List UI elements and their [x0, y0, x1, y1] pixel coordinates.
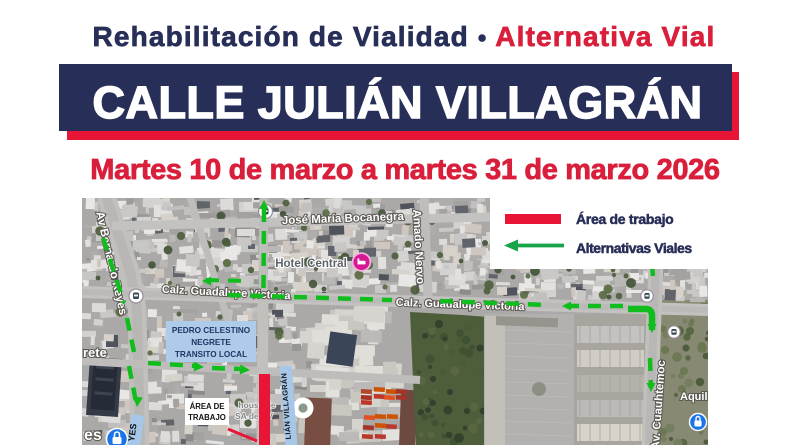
svg-text:TRABAJO: TRABAJO — [188, 413, 226, 422]
svg-text:PEDRO CELESTINO: PEDRO CELESTINO — [172, 326, 251, 335]
svg-text:TRANSITO LOCAL: TRANSITO LOCAL — [175, 350, 247, 359]
svg-text:Hotel Central: Hotel Central — [275, 258, 347, 270]
svg-text:rete: rete — [83, 345, 107, 360]
svg-text:house de: house de — [238, 400, 276, 410]
svg-text:ÁREA DE: ÁREA DE — [190, 402, 225, 411]
svg-text:es: es — [84, 427, 102, 444]
svg-text:Aquil: Aquil — [680, 391, 708, 403]
svg-text:NEGRETE: NEGRETE — [191, 338, 231, 347]
